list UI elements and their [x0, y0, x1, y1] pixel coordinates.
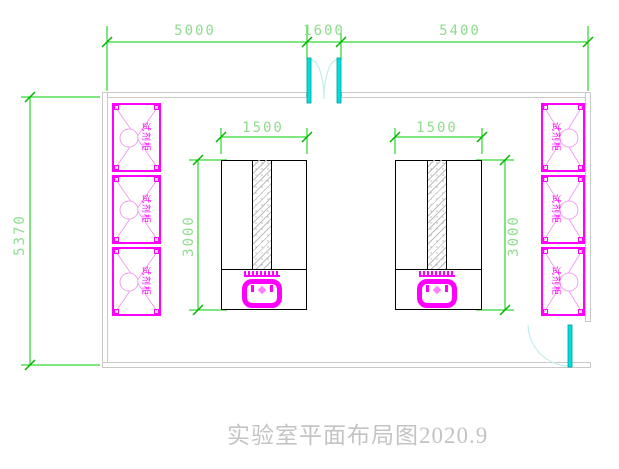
lab-bench-left-reagent-shelf [252, 160, 272, 270]
dim-label-right-bench-depth: 3000 [506, 201, 522, 271]
drawing-title: 实验室平面布局图2020.9 [227, 416, 488, 450]
sink-detail [270, 285, 273, 292]
cabinet-label: 试剂柜 [140, 192, 152, 226]
linework-overlay [0, 0, 619, 469]
reagent-cabinet-left-1 [112, 103, 161, 172]
cabinet-x-symbol [543, 177, 583, 242]
lab-bench-left-divider [221, 269, 307, 270]
top-door-right-leaf [337, 58, 341, 103]
cabinet-x-symbol [114, 177, 159, 242]
sink-faucet-left [244, 271, 280, 277]
dim-label-top-right: 5400 [425, 23, 495, 39]
dim-label-top-left: 5000 [160, 23, 230, 39]
cabinet-label: 试剂柜 [140, 120, 152, 154]
sink-faucet-right [419, 271, 455, 277]
cabinet-label: 试剂柜 [550, 120, 562, 154]
lab-bench-right-divider [395, 269, 482, 270]
sink-detail [445, 285, 448, 292]
dim-label-left-bench-depth: 3000 [181, 201, 197, 271]
reagent-cabinet-left-2 [112, 175, 161, 244]
floor-plan-canvas: 5000 1600 5400 5370 1500 1500 3000 3000 [0, 0, 619, 469]
cabinet-x-symbol [114, 249, 159, 314]
cabinet-label: 试剂柜 [550, 192, 562, 226]
reagent-cabinet-left-3 [112, 247, 161, 316]
right-door-leaf [568, 325, 572, 367]
top-door-left-leaf [307, 58, 311, 103]
reagent-cabinet-right-2 [541, 175, 585, 244]
cabinet-x-symbol [114, 105, 159, 170]
cabinet-x-symbol [543, 105, 583, 170]
dim-label-left-bench-width: 1500 [228, 120, 298, 136]
cabinet-x-symbol [543, 249, 583, 314]
reagent-cabinet-right-3 [541, 247, 585, 316]
reagent-cabinet-right-1 [541, 103, 585, 172]
dim-label-right-bench-width: 1500 [402, 120, 472, 136]
lab-bench-right-reagent-shelf [427, 160, 447, 270]
sink-detail [426, 285, 429, 292]
room-depth-dimension-lines [21, 97, 100, 365]
dim-label-room-depth: 5370 [12, 200, 28, 270]
cabinet-label: 试剂柜 [550, 264, 562, 298]
dim-label-top-door: 1600 [289, 23, 359, 39]
sink-detail [251, 285, 254, 292]
cabinet-label: 试剂柜 [140, 264, 152, 298]
